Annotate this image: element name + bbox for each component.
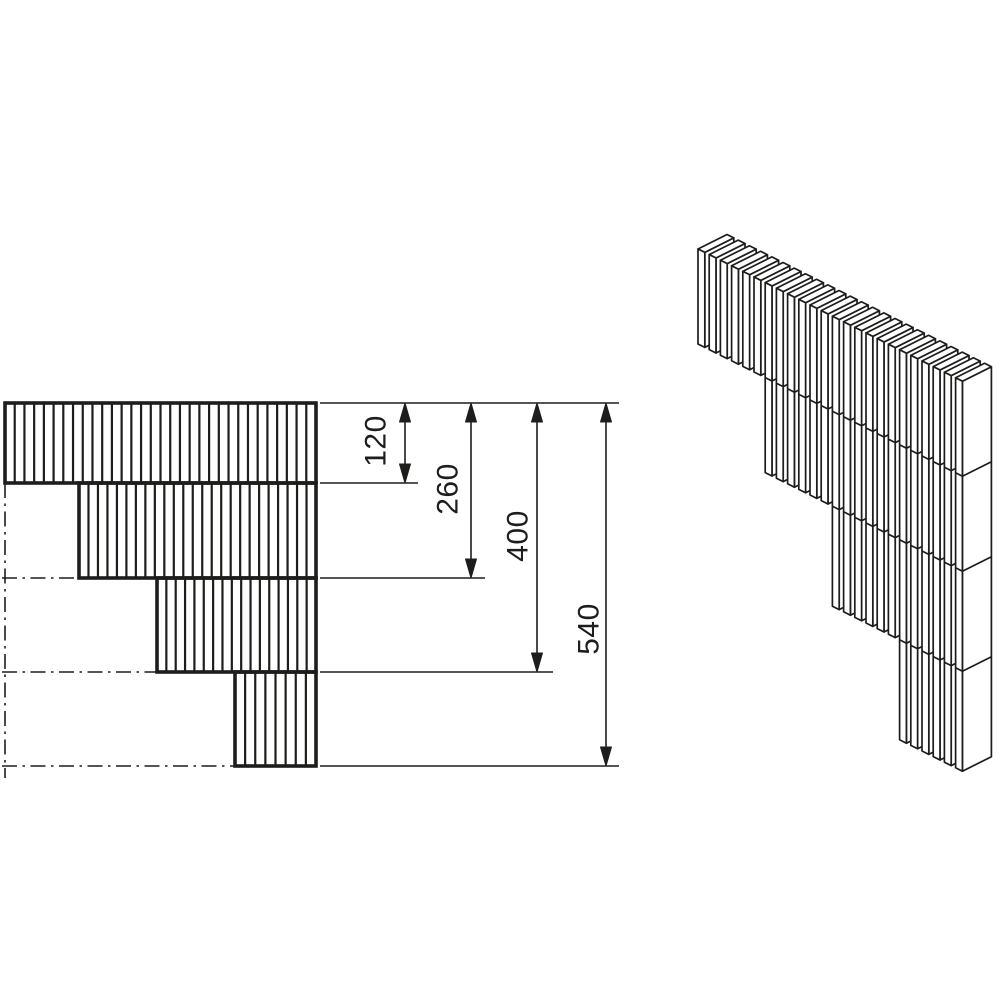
isometric-view <box>0 0 1000 1000</box>
slat-front-face <box>709 255 716 353</box>
slat-front-face <box>743 271 750 369</box>
slat-front-face <box>698 249 705 347</box>
slat-front-face <box>754 277 761 375</box>
slat-front-face <box>732 266 739 364</box>
slat-front-face <box>933 367 940 760</box>
slat-front-face <box>900 350 907 743</box>
slat-front-face <box>888 344 895 637</box>
slat-front-face <box>855 327 862 620</box>
slat-front-face <box>832 316 839 609</box>
slat-front-face <box>844 322 851 615</box>
slat-front-face <box>866 333 873 626</box>
slat-front-face <box>911 355 918 748</box>
drawing-canvas: 120260400540 <box>0 0 1000 1000</box>
slat-front-face <box>944 372 951 765</box>
iso-slat-23 <box>956 363 992 771</box>
slat-front-face <box>956 378 963 771</box>
slat-front-face <box>877 339 884 632</box>
slat-front-face <box>720 260 727 358</box>
slat-front-face <box>922 361 929 754</box>
